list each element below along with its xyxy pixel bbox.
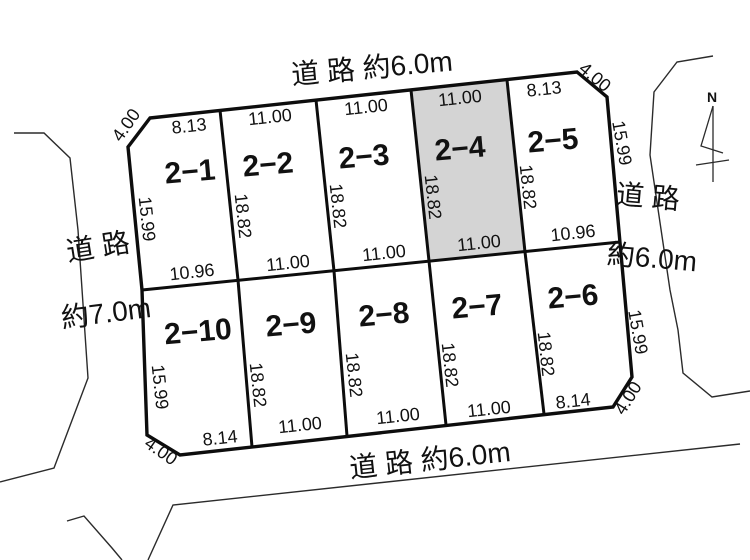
- dim-top-2-3: 11.00: [343, 95, 389, 119]
- dim-top-2-5: 8.13: [526, 77, 563, 101]
- dim-top-2-2: 11.00: [247, 105, 293, 129]
- dimension-labels: 8.13 11.00 11.00 11.00 8.13 10.96 11.00 …: [108, 58, 652, 469]
- dim-mid-2-2: 11.00: [265, 251, 311, 275]
- road-boundary-right: [650, 56, 750, 397]
- dim-cut-top-left: 4.00: [108, 105, 144, 145]
- dim-bottom-2-6: 8.14: [555, 389, 592, 413]
- site-plan-canvas: 8.13 11.00 11.00 11.00 8.13 10.96 11.00 …: [0, 0, 750, 560]
- plot-label-2-6: 2−6: [546, 278, 600, 315]
- dim-left-2-10: 15.99: [148, 364, 173, 411]
- dim-cut-bottom-left: 4.00: [141, 433, 181, 469]
- dim-bottom-2-10: 8.14: [202, 426, 239, 450]
- plot-label-2-3: 2−3: [337, 138, 391, 175]
- dim-cut-bottom-right: 4.00: [610, 378, 646, 418]
- dim-top-2-1: 8.13: [171, 114, 208, 138]
- road-label-left-name: 道 路: [64, 227, 132, 268]
- dim-bottom-2-9: 11.00: [277, 413, 323, 437]
- plot-label-2-5: 2−5: [526, 122, 580, 159]
- dim-mid-2-3: 11.00: [361, 241, 407, 265]
- north-arrow: N: [696, 89, 729, 182]
- road-boundary-bottom-left-corner: [67, 516, 122, 560]
- road-label-top: 道 路 約6.0m: [290, 46, 454, 91]
- land-plot-diagram: 8.13 11.00 11.00 11.00 8.13 10.96 11.00 …: [0, 0, 750, 560]
- dim-cut-top-right: 4.00: [575, 58, 615, 96]
- road-label-right-width: 約6.0m: [606, 239, 699, 278]
- north-label: N: [707, 89, 717, 105]
- dim-left-2-1: 15.99: [135, 196, 160, 243]
- plot-labels: 2−1 2−2 2−3 2−4 2−5 2−10 2−9 2−8 2−7 2−6: [163, 122, 600, 351]
- dim-side-2-8: 18.82: [342, 352, 367, 399]
- road-label-left-width: 約7.0m: [59, 292, 152, 334]
- plot-label-2-4: 2−4: [433, 130, 487, 167]
- north-arrow-flag: [701, 106, 723, 153]
- road-label-right-name: 道 路: [615, 179, 681, 215]
- dim-mid-2-1: 10.96: [169, 260, 216, 285]
- plot-label-2-2: 2−2: [241, 146, 295, 183]
- plot-label-2-9: 2−9: [264, 306, 318, 343]
- dim-mid-2-5: 10.96: [550, 221, 597, 246]
- plot-label-2-8: 2−8: [357, 296, 411, 333]
- plot-label-2-1: 2−1: [163, 153, 217, 190]
- plot-label-2-10: 2−10: [163, 313, 233, 352]
- plot-label-2-7: 2−7: [450, 288, 504, 325]
- dim-bottom-2-8: 11.00: [375, 404, 421, 428]
